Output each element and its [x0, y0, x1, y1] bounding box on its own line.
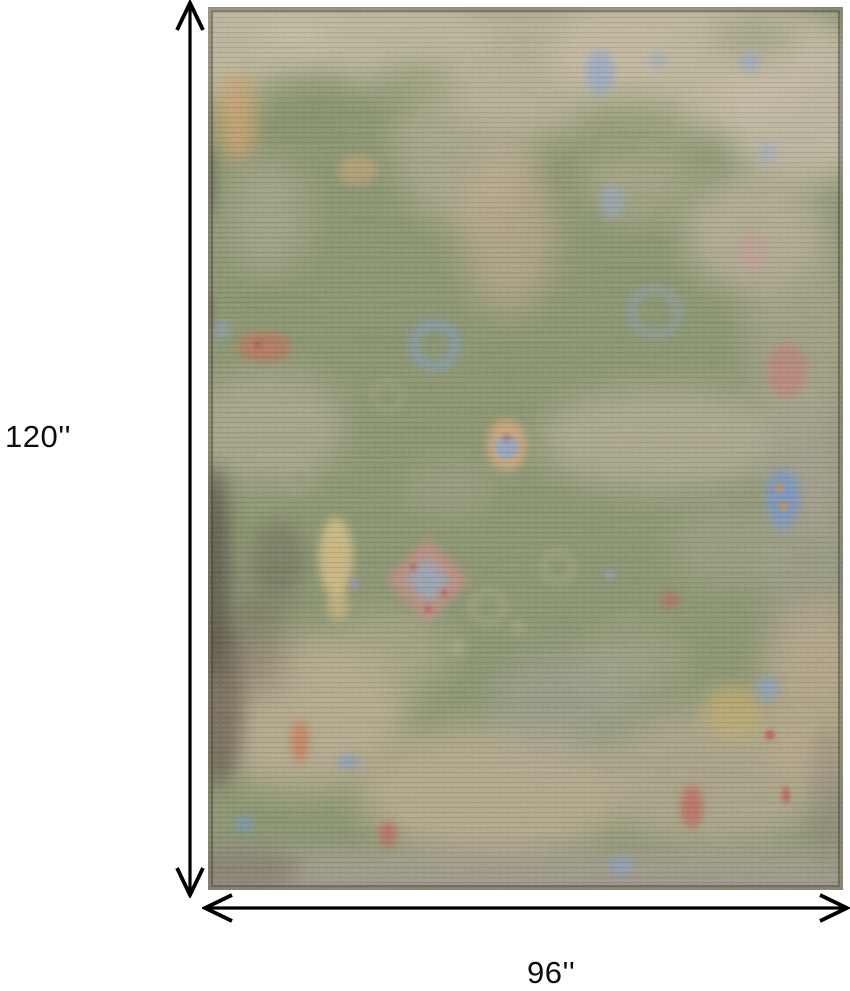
width-dimension-arrow — [202, 893, 850, 923]
rug-artwork — [208, 7, 843, 890]
width-dimension-label: 96'' — [527, 955, 575, 991]
product-dimension-diagram: 120'' 96'' — [0, 0, 850, 991]
rug-product-image — [208, 7, 843, 890]
height-dimension-label: 120'' — [5, 419, 71, 455]
rug-texture-overlay — [208, 7, 843, 890]
height-dimension-arrow — [175, 0, 205, 898]
